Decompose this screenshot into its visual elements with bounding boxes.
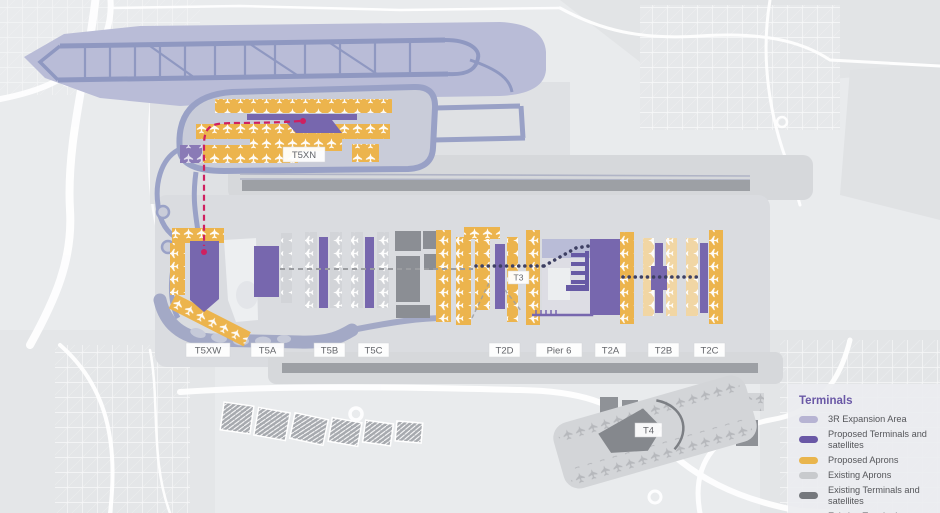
terminal-t2a [590,239,623,315]
terminal-label-t2a: T2A [595,343,626,357]
svg-text:T5XN: T5XN [292,150,316,161]
satellite-t5c [365,237,374,308]
terminal-label-t5a: T5A [251,343,284,357]
expansion-area-swatch [799,416,818,423]
south-runway [282,363,758,373]
svg-text:T2C: T2C [701,346,719,357]
proposed-terminal-swatch [799,436,818,443]
terminal-label-t5c: T5C [358,343,389,357]
terminal-label-t2b: T2B [648,343,679,357]
svg-text:T5B: T5B [321,346,338,357]
svg-text:T3: T3 [514,273,524,283]
legend-item-proposed-aprons: Proposed Aprons [797,455,932,466]
terminal-label-pier6: Pier 6 [536,343,582,357]
satellite-t2c [700,243,708,313]
terminal-label-t3: T3 [508,271,529,284]
proposed-apron-t5xn-east [352,144,379,162]
terminal-label-t2d: T2D [489,343,520,357]
legend-item-existing-aprons: Existing Aprons [797,470,932,481]
legend-title: Terminals [799,395,932,407]
terminal-label-t5xn: T5XN [283,147,325,162]
proposed-apron-t2c-east [709,230,723,324]
terminal-label-t4: T4 [635,423,662,437]
svg-text:T2B: T2B [655,346,672,357]
svg-text:Pier 6: Pier 6 [547,346,572,357]
terminal-label-t5xw: T5XW [186,343,230,357]
legend-panel: Terminals 3R Expansion Area Proposed Ter… [788,384,940,513]
north-runway [242,180,750,191]
proposed-apron-central-1 [436,230,451,322]
proposed-apron-t5xw-west [170,243,185,295]
svg-text:T5XW: T5XW [195,346,221,357]
svg-text:T2D: T2D [496,346,514,357]
legend-item-existing-terminals: Existing Terminals and satellites [797,485,932,506]
airport-masterplan-map: T5XN T5XW T5A T5B T5C T2D Pier 6 T2A T2B… [0,0,940,513]
legend-item-proposed-terminals: Proposed Terminals and satellites [797,429,932,450]
proposed-apron-t5xw-north [172,228,224,243]
proposed-apron-purple-block [180,145,202,163]
terminal-label-t5b: T5B [314,343,345,357]
proposed-apron-swatch [799,457,818,464]
existing-terminal-swatch [799,492,818,499]
proposed-apron-t5xn-north [215,99,392,113]
satellite-t5b [319,237,328,308]
svg-text:T2A: T2A [602,346,620,357]
satellite-t2d [495,244,505,309]
terminal-t5a-extension [254,246,279,297]
legend-item-expansion-area: 3R Expansion Area [797,414,932,425]
terminal-label-t2c: T2C [694,343,725,357]
svg-text:T5A: T5A [259,346,277,357]
svg-text:T4: T4 [643,426,654,437]
proposed-apron-central-2 [456,237,471,325]
existing-apron-swatch [799,472,818,479]
svg-text:T5C: T5C [365,346,383,357]
